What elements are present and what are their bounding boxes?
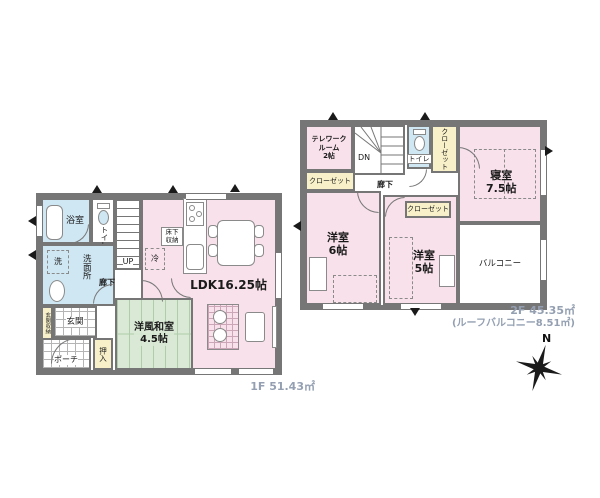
underfloor-storage-box: 床下 収納 xyxy=(161,227,183,246)
room-washitsu: 洋風和室 4.5帖 xyxy=(115,298,193,370)
room-closet-left: クローゼット xyxy=(305,171,355,191)
roof-balcony-label: (ルーフバルコニー8.51㎡) xyxy=(415,314,575,329)
entrance-door-arc xyxy=(51,338,77,364)
stairs-2f: DN xyxy=(353,125,405,175)
telework-line2: ルーム xyxy=(319,144,340,152)
window xyxy=(401,303,441,310)
desk xyxy=(309,257,327,291)
vent-marker xyxy=(420,112,430,120)
vent-marker xyxy=(28,216,36,226)
vent-marker xyxy=(28,250,36,260)
room-ldk-label: LDK16.25帖 xyxy=(190,278,267,292)
window xyxy=(275,253,282,298)
stairs-fan-lines xyxy=(355,127,403,173)
room-closet-mid-label: クローゼット xyxy=(407,205,449,213)
dining-chair xyxy=(208,244,218,257)
washitsu-size: 4.5帖 xyxy=(140,334,168,345)
compass-n-label: N xyxy=(542,332,551,345)
west6-size: 6帖 xyxy=(329,244,348,257)
vent-marker xyxy=(230,184,240,192)
stove-burner xyxy=(196,211,202,217)
room-toilet-2f: トイレ xyxy=(407,125,431,169)
telework-line3: 2帖 xyxy=(323,152,335,160)
room-west5-label: 洋室 5帖 xyxy=(413,249,435,275)
room-telework: テレワーク ルーム 2帖 xyxy=(305,125,353,171)
dining-chair xyxy=(254,225,264,238)
double-bed xyxy=(474,149,536,199)
room-closet-right-label: クローゼット xyxy=(440,128,448,170)
toilet-tank xyxy=(97,203,110,209)
room-telework-label: テレワーク ルーム 2帖 xyxy=(312,135,347,160)
stove-burner xyxy=(189,216,195,222)
fridge-label: 冷 xyxy=(151,254,159,264)
room-genkan-label: 玄関 xyxy=(66,317,83,327)
room-genkan-storage-label: 玄関収納 xyxy=(44,312,51,334)
room-west6-label: 洋室 6帖 xyxy=(327,231,349,257)
floor-cushion xyxy=(213,328,227,342)
telework-line1: テレワーク xyxy=(312,135,347,143)
room-toilet-2f-label: トイレ xyxy=(407,154,432,164)
corridor-2f-label: 廊下 xyxy=(377,180,393,190)
window xyxy=(195,368,231,375)
room-oshiire-label: 押入 xyxy=(99,347,108,362)
west5-name: 洋室 xyxy=(413,249,435,262)
vent-marker xyxy=(293,221,301,231)
room-genkan: 玄関 xyxy=(53,306,97,338)
washitsu-name: 洋風和室 xyxy=(134,322,174,333)
tv-board xyxy=(272,306,277,348)
window xyxy=(239,368,273,375)
compass: N xyxy=(512,330,568,392)
sink-basin xyxy=(49,280,65,302)
compass-rose-icon: N xyxy=(512,330,568,392)
desk xyxy=(439,255,455,287)
room-porch: ポーチ xyxy=(41,338,91,370)
window xyxy=(36,206,43,236)
bed xyxy=(333,275,377,303)
kitchen-sink xyxy=(186,244,204,270)
double-bed-centerline xyxy=(504,149,505,199)
room-oshiire: 押入 xyxy=(93,338,113,370)
room-genkan-storage: 玄関収納 xyxy=(41,306,53,340)
vent-marker xyxy=(545,146,553,156)
vent-marker xyxy=(328,112,338,120)
stairs-up-label: UP xyxy=(123,257,134,267)
room-balcony: バルコニー xyxy=(458,223,542,305)
window xyxy=(186,193,226,200)
room-balcony-label: バルコニー xyxy=(479,259,521,269)
floor1-area-label: 1F 51.43㎡ xyxy=(225,378,315,394)
west6-name: 洋室 xyxy=(327,231,349,244)
toilet-door-arc xyxy=(409,169,427,187)
washer-box: 洗 xyxy=(47,250,69,274)
room-bedroom: 寝室 7.5帖 xyxy=(458,125,542,223)
vent-marker xyxy=(168,185,178,193)
floorplan-canvas: LDK16.25帖 床下 収納 冷 xyxy=(0,0,600,498)
room-closet-left-label: クローゼット xyxy=(309,177,351,185)
dining-chair xyxy=(208,225,218,238)
living-table xyxy=(245,312,265,342)
room-closet-mid: クローゼット xyxy=(405,201,451,218)
bed xyxy=(389,237,413,299)
room-senmenjo-label: 洗面所 xyxy=(81,254,91,280)
vent-marker xyxy=(92,185,102,193)
room-closet-right: クローゼット xyxy=(431,125,458,173)
window xyxy=(540,150,547,195)
stairs-dn-label: DN xyxy=(358,153,370,163)
underfloor-storage-label: 収納 xyxy=(166,237,179,245)
west5-size: 5帖 xyxy=(415,262,434,275)
washer-label: 洗 xyxy=(54,257,62,267)
dining-table xyxy=(217,220,255,266)
room-toilet-1f: トイレ xyxy=(91,198,115,244)
bathtub xyxy=(46,205,63,240)
stove-burner xyxy=(189,205,195,211)
floor1-plan: LDK16.25帖 床下 収納 冷 xyxy=(36,193,282,375)
window xyxy=(323,303,363,310)
toilet-bowl xyxy=(414,136,425,151)
toilet-bowl xyxy=(98,210,109,225)
toilet-tank xyxy=(413,129,426,135)
room-washitsu-label: 洋風和室 4.5帖 xyxy=(134,322,174,346)
stairs-1f: UP xyxy=(115,198,141,270)
floor-cushion xyxy=(213,310,227,324)
dining-chair xyxy=(254,244,264,257)
window xyxy=(540,240,547,280)
fridge-box: 冷 xyxy=(145,248,165,270)
floor2-plan: 寝室 7.5帖 バルコニー テレワーク ルーム 2帖 xyxy=(300,120,547,310)
